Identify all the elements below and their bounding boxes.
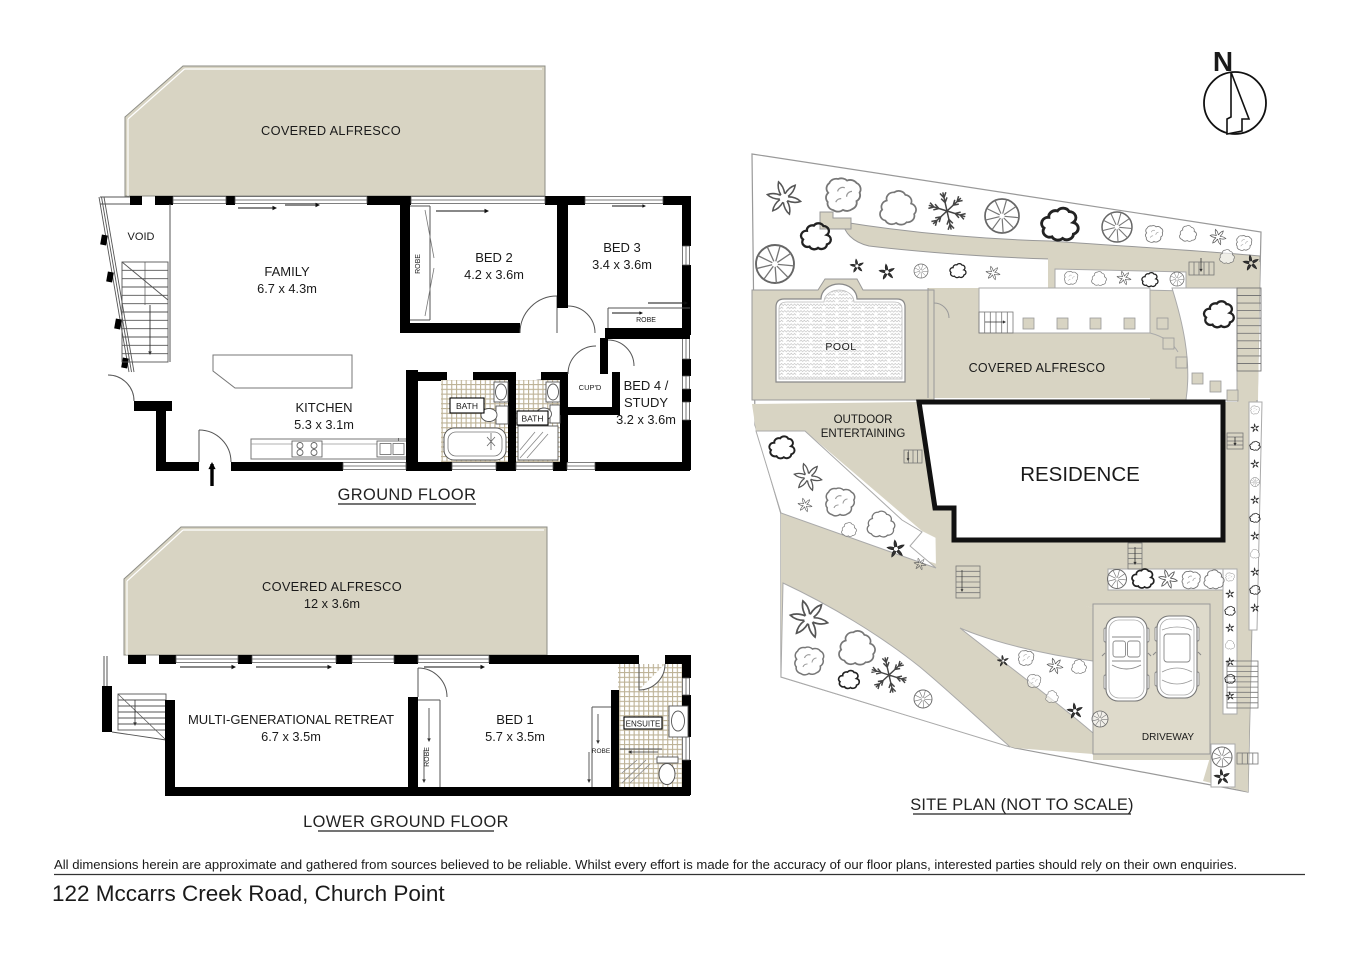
svg-text:122 Mccarrs Creek Road, Church: 122 Mccarrs Creek Road, Church Point (52, 881, 445, 906)
svg-text:BATH: BATH (521, 414, 543, 424)
svg-text:STUDY: STUDY (624, 395, 668, 410)
svg-text:5.3 x 3.1m: 5.3 x 3.1m (294, 417, 354, 432)
svg-text:N: N (1213, 46, 1233, 77)
svg-text:KITCHEN: KITCHEN (295, 400, 352, 415)
svg-text:BATH: BATH (456, 401, 478, 411)
svg-text:MULTI-GENERATIONAL RETREAT: MULTI-GENERATIONAL RETREAT (188, 712, 394, 727)
svg-text:All dimensions herein are appr: All dimensions herein are approximate an… (54, 857, 1237, 872)
svg-text:BED 4 /: BED 4 / (624, 378, 669, 393)
svg-text:FAMILY: FAMILY (264, 264, 310, 279)
svg-text:6.7 x 4.3m: 6.7 x 4.3m (257, 281, 317, 296)
svg-text:BED 1: BED 1 (496, 712, 534, 727)
svg-text:COVERED ALFRESCO: COVERED ALFRESCO (261, 123, 401, 138)
svg-text:ROBE: ROBE (415, 254, 422, 274)
svg-text:3.2 x 3.6m: 3.2 x 3.6m (616, 412, 676, 427)
svg-text:DRIVEWAY: DRIVEWAY (1142, 732, 1195, 743)
svg-text:ROBE: ROBE (592, 748, 611, 755)
svg-text:ENTERTAINING: ENTERTAINING (821, 428, 906, 440)
svg-text:RESIDENCE: RESIDENCE (1020, 463, 1140, 486)
svg-text:BED 2: BED 2 (475, 250, 513, 265)
svg-text:ENSUITE: ENSUITE (626, 720, 661, 729)
svg-text:COVERED ALFRESCO: COVERED ALFRESCO (262, 579, 402, 594)
svg-text:ROBE: ROBE (424, 747, 431, 767)
svg-text:BED 3: BED 3 (603, 240, 641, 255)
svg-text:VOID: VOID (128, 231, 155, 243)
svg-text:POOL: POOL (825, 341, 856, 353)
svg-text:4.2 x 3.6m: 4.2 x 3.6m (464, 267, 524, 282)
svg-text:ROBE: ROBE (636, 317, 656, 324)
svg-text:GROUND FLOOR: GROUND FLOOR (338, 486, 477, 504)
svg-text:COVERED ALFRESCO: COVERED ALFRESCO (969, 361, 1106, 375)
svg-text:LOWER GROUND FLOOR: LOWER GROUND FLOOR (303, 813, 509, 831)
svg-text:6.7 x 3.5m: 6.7 x 3.5m (261, 729, 321, 744)
svg-text:SITE PLAN (NOT TO SCALE): SITE PLAN (NOT TO SCALE) (910, 796, 1133, 814)
svg-text:3.4 x 3.6m: 3.4 x 3.6m (592, 257, 652, 272)
svg-text:5.7 x 3.5m: 5.7 x 3.5m (485, 729, 545, 744)
svg-text:CUP'D: CUP'D (579, 383, 602, 392)
svg-text:12 x 3.6m: 12 x 3.6m (304, 596, 360, 611)
svg-text:OUTDOOR: OUTDOOR (834, 414, 893, 426)
